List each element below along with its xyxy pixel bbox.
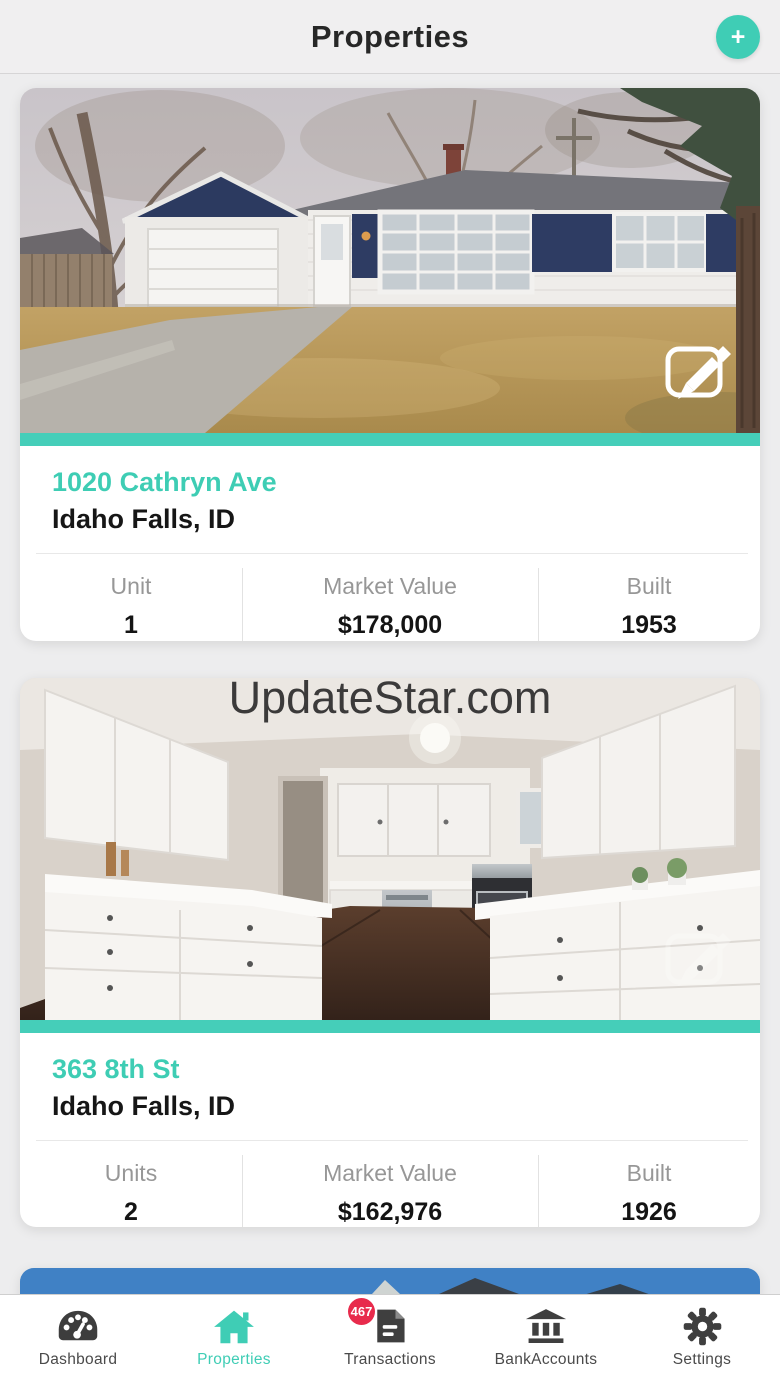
nav-label: BankAccounts [495, 1351, 598, 1369]
house-photo-illustration [20, 88, 760, 433]
property-stats: Units 2 Market Value $162,976 Built 1926 [20, 1141, 760, 1227]
property-photo-house [20, 88, 760, 433]
edit-pencil-icon [660, 337, 738, 401]
card-accent-stripe [20, 433, 760, 446]
stat-market-value: Market Value $178,000 [242, 554, 538, 641]
bottom-nav: Dashboard Properties 467 Trans [0, 1294, 780, 1387]
gear-icon [678, 1305, 726, 1347]
property-city: Idaho Falls, ID [52, 1090, 730, 1122]
page-title: Properties [0, 0, 780, 74]
watermark: UpdateStar.com [0, 672, 780, 724]
stat-built: Built 1953 [538, 554, 760, 641]
property-address[interactable]: 1020 Cathryn Ave [52, 466, 730, 498]
dashboard-gauge-icon [54, 1305, 102, 1347]
nav-item-settings[interactable]: Settings [624, 1295, 780, 1387]
property-stats: Unit 1 Market Value $178,000 Built 1953 [20, 554, 760, 641]
property-city: Idaho Falls, ID [52, 503, 730, 535]
home-icon [210, 1305, 258, 1347]
notification-badge: 467 [348, 1298, 375, 1325]
nav-item-bankaccounts[interactable]: BankAccounts [468, 1295, 624, 1387]
nav-label: Transactions [344, 1351, 436, 1369]
edit-property-button[interactable] [660, 924, 738, 988]
app-header: Properties + [0, 0, 780, 74]
nav-item-properties[interactable]: Properties [156, 1295, 312, 1387]
stat-built: Built 1926 [538, 1141, 760, 1227]
stat-unit: Unit 1 [20, 554, 242, 641]
nav-label: Settings [673, 1351, 731, 1369]
nav-item-transactions[interactable]: 467 Transactions [312, 1295, 468, 1387]
receipt-icon: 467 [366, 1305, 414, 1347]
stat-market-value: Market Value $162,976 [242, 1141, 538, 1227]
nav-item-dashboard[interactable]: Dashboard [0, 1295, 156, 1387]
bank-icon [522, 1305, 570, 1347]
nav-label: Dashboard [39, 1351, 118, 1369]
property-address[interactable]: 363 8th St [52, 1053, 730, 1085]
plus-icon: + [731, 23, 746, 51]
kitchen-photo-illustration [20, 678, 760, 1020]
edit-property-button[interactable] [660, 337, 738, 401]
property-card[interactable]: 363 8th St Idaho Falls, ID Units 2 Marke… [20, 678, 760, 1227]
nav-label: Properties [197, 1351, 271, 1369]
property-card[interactable]: 1020 Cathryn Ave Idaho Falls, ID Unit 1 … [20, 88, 760, 641]
property-photo-kitchen [20, 678, 760, 1020]
app-screen: Properties + [0, 0, 780, 1387]
card-accent-stripe [20, 1020, 760, 1033]
stat-units: Units 2 [20, 1141, 242, 1227]
add-property-button[interactable]: + [716, 15, 760, 59]
edit-pencil-icon [660, 924, 738, 988]
